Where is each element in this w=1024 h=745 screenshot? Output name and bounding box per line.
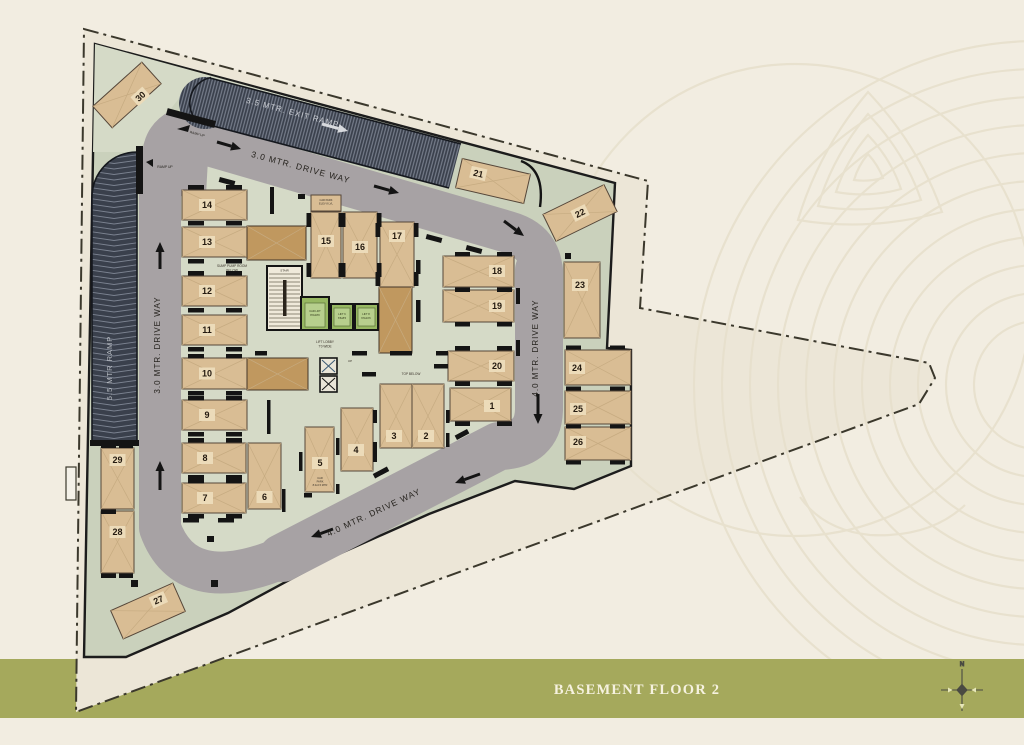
svg-text:RAMP UP: RAMP UP [157, 165, 173, 169]
svg-text:2: 2 [423, 431, 428, 441]
svg-text:5.5 MTR RAMP: 5.5 MTR RAMP [105, 336, 114, 401]
svg-text:8: 8 [202, 453, 207, 463]
svg-text:11: 11 [202, 325, 212, 335]
svg-text:LIFT LOBBY: LIFT LOBBY [316, 340, 335, 344]
svg-text:8.0x2.5 MTR: 8.0x2.5 MTR [313, 483, 328, 487]
svg-text:10: 10 [202, 369, 212, 379]
svg-text:TOP BELOW: TOP BELOW [402, 372, 421, 376]
svg-text:24: 24 [572, 363, 582, 373]
svg-text:15: 15 [321, 236, 331, 246]
svg-text:7: 7 [202, 493, 207, 503]
svg-text:12: 12 [202, 286, 212, 296]
svg-text:6: 6 [262, 492, 267, 502]
svg-text:5: 5 [317, 458, 322, 468]
svg-text:4: 4 [353, 445, 358, 455]
svg-text:STAIR: STAIR [280, 269, 289, 273]
svg-text:18: 18 [492, 266, 502, 276]
svg-text:CAR LIFT: CAR LIFT [309, 309, 321, 313]
svg-text:20: 20 [492, 361, 502, 371]
svg-text:3.0 MTR. DRIVE WAY: 3.0 MTR. DRIVE WAY [153, 296, 162, 393]
svg-text:ELEV 8 LVL: ELEV 8 LVL [319, 202, 333, 206]
svg-text:7'0 WIDE: 7'0 WIDE [318, 344, 331, 348]
svg-text:9: 9 [204, 410, 209, 420]
svg-text:CAR: CAR [317, 476, 323, 480]
svg-text:8'0x18'0: 8'0x18'0 [310, 313, 320, 317]
svg-text:26: 26 [573, 437, 583, 447]
svg-text:17: 17 [392, 231, 402, 241]
svg-text:25: 25 [573, 404, 583, 414]
svg-text:4.0 MTR. DRIVE WAY: 4.0 MTR. DRIVE WAY [531, 299, 540, 396]
svg-text:LIFT 8: LIFT 8 [362, 312, 370, 316]
svg-text:UP: UP [348, 359, 352, 363]
svg-text:1: 1 [489, 401, 494, 411]
svg-text:13: 13 [202, 237, 212, 247]
svg-text:N: N [960, 662, 964, 668]
svg-text:28: 28 [112, 527, 122, 537]
svg-text:14: 14 [202, 200, 212, 210]
svg-text:LIFT 6: LIFT 6 [338, 312, 346, 316]
svg-text:SUMP PUMP ROOM: SUMP PUMP ROOM [217, 264, 247, 268]
svg-text:6'6x8'6: 6'6x8'6 [338, 316, 347, 320]
svg-text:29: 29 [112, 455, 122, 465]
svg-text:PARK: PARK [317, 480, 324, 484]
svg-text:19: 19 [492, 301, 502, 311]
svg-text:16: 16 [355, 242, 365, 252]
svg-text:23: 23 [575, 280, 585, 290]
svg-text:BASEMENT FLOOR 2: BASEMENT FLOOR 2 [554, 682, 720, 698]
svg-text:6'6x10'6: 6'6x10'6 [361, 316, 371, 320]
svg-text:3: 3 [391, 431, 396, 441]
svg-text:CAR PARK: CAR PARK [319, 198, 332, 202]
